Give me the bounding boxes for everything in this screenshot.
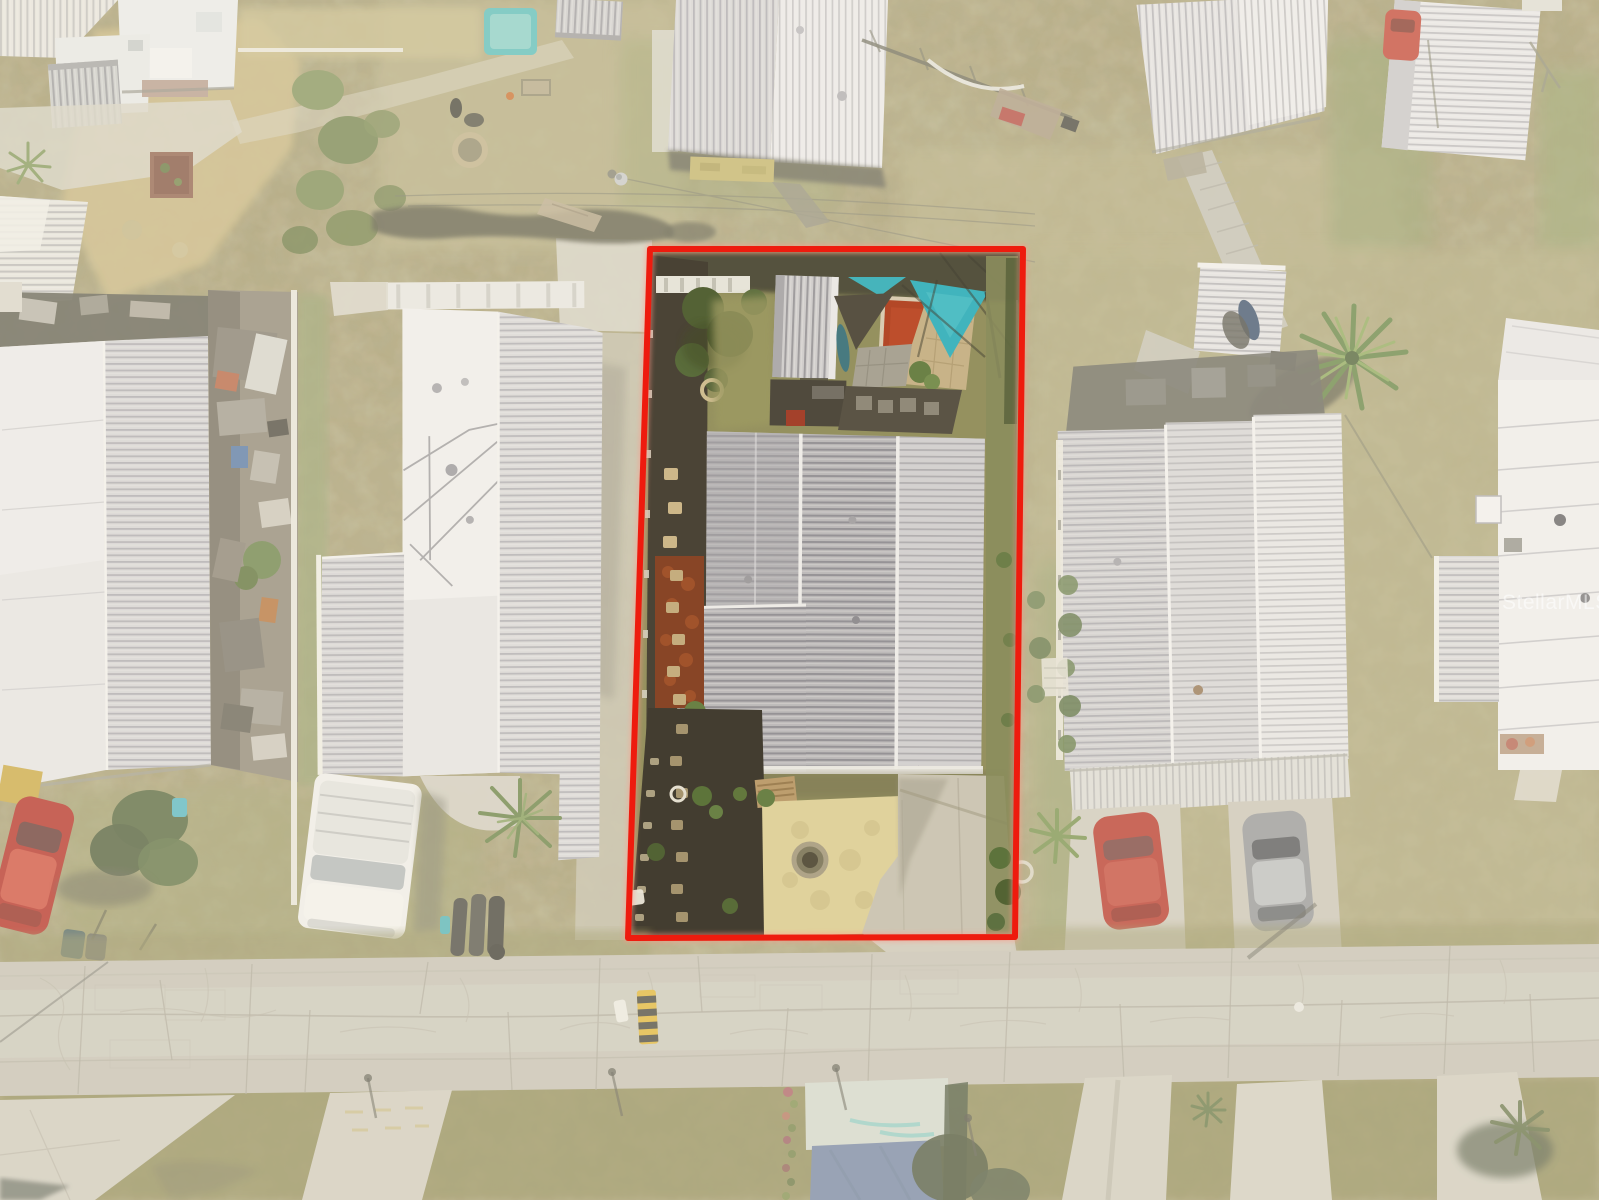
svg-text:StellarMLS: StellarMLS	[1502, 591, 1599, 614]
